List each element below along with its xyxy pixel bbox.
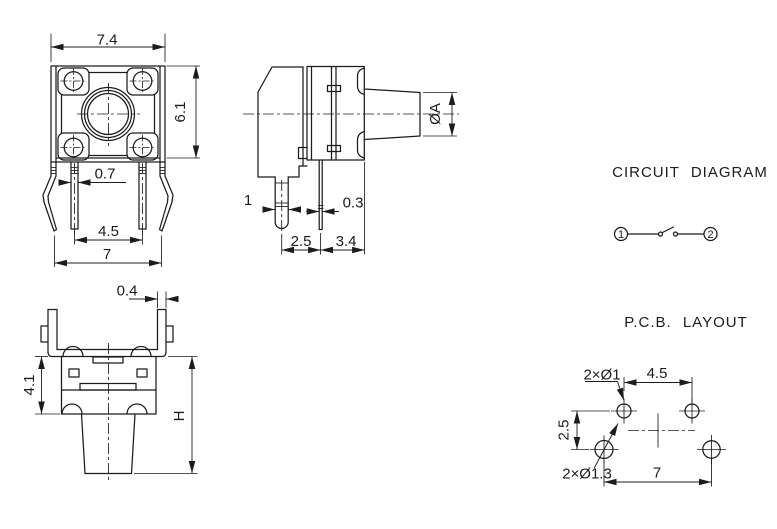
front-outer-span-dim: 7 — [103, 246, 111, 263]
front-width-dim: 7.4 — [97, 32, 118, 49]
boss-width-dim: 1 — [244, 192, 252, 209]
technical-drawing: 7.4 6.1 0.7 4.5 7 — [0, 0, 777, 529]
datasheet-drawing-page: 7.4 6.1 0.7 4.5 7 — [0, 0, 777, 529]
body-height-dim: 4.1 — [21, 375, 38, 396]
pcb-large-hole-label: 2×Ø1.3 — [562, 466, 612, 483]
total-height-dim: H — [171, 411, 188, 422]
knob-diameter-dim: ØA — [427, 103, 444, 125]
lead-offset-dim: 3.4 — [336, 233, 357, 250]
terminal-2-label: 2 — [707, 229, 713, 241]
front-view: 7.4 6.1 0.7 4.5 7 — [43, 32, 200, 268]
pcb-layout-title: P.C.B. LAYOUT — [624, 314, 747, 331]
pcb-layout: P.C.B. LAYOUT 4.5 2.5 7 2×Ø1 2×Ø1.3 — [556, 314, 748, 487]
terminal-1-label: 1 — [618, 229, 624, 241]
pcb-row-pitch-dim: 2.5 — [556, 420, 573, 441]
pcb-bottom-pitch-dim: 7 — [653, 465, 661, 482]
lead-thickness-dim: 0.3 — [343, 195, 364, 212]
pcb-top-pitch-dim: 4.5 — [647, 365, 668, 382]
front-height-dim: 6.1 — [172, 102, 189, 123]
bracket-thickness-dim: 0.4 — [117, 283, 138, 300]
boss-offset-dim: 2.5 — [291, 233, 312, 250]
switch-lever — [663, 227, 674, 233]
mount-view: 0.4 4.1 H — [21, 283, 198, 482]
circuit-diagram-title: CIRCUIT DIAGRAM — [612, 164, 768, 181]
side-view: ØA 1 0.3 2.5 3.4 — [243, 67, 459, 255]
front-lead-pitch-dim: 4.5 — [98, 223, 119, 240]
circuit-diagram: CIRCUIT DIAGRAM 1 2 — [612, 164, 768, 241]
front-lead-width-dim: 0.7 — [95, 166, 116, 183]
pcb-small-hole-label: 2×Ø1 — [583, 367, 620, 384]
